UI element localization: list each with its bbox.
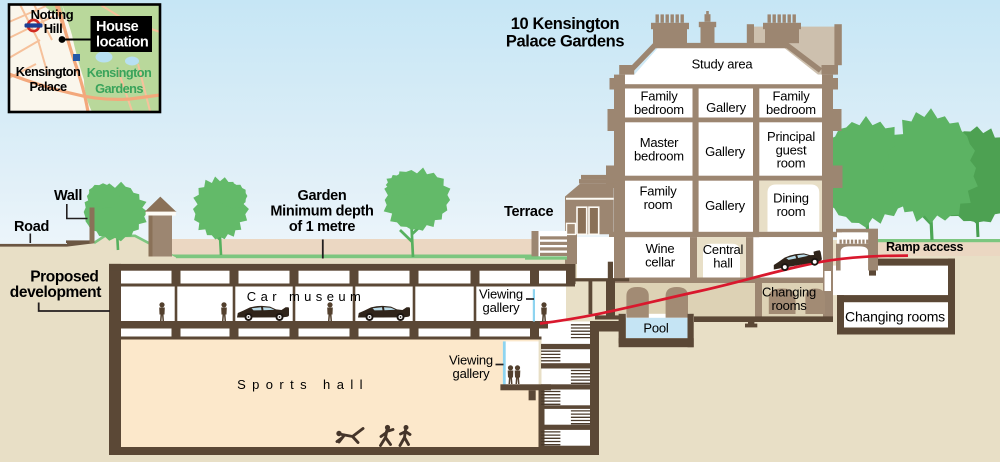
svg-text:Ramp access: Ramp access [886, 240, 964, 254]
svg-text:Terrace: Terrace [504, 204, 553, 220]
svg-text:gallery: gallery [453, 366, 491, 381]
svg-text:10 Kensington: 10 Kensington [511, 15, 620, 33]
svg-text:Proposed: Proposed [30, 269, 98, 286]
svg-text:Gallery: Gallery [705, 144, 745, 159]
svg-text:hall: hall [713, 255, 733, 270]
svg-text:Palace Gardens: Palace Gardens [506, 33, 624, 51]
svg-text:of 1 metre: of 1 metre [289, 219, 356, 235]
svg-text:Palace: Palace [30, 79, 67, 94]
svg-text:room: room [777, 156, 806, 171]
svg-text:bedroom: bedroom [634, 102, 684, 117]
svg-text:location: location [96, 35, 148, 51]
svg-text:Changing rooms: Changing rooms [845, 309, 945, 325]
svg-text:Gardens: Gardens [95, 81, 143, 96]
svg-text:Wall: Wall [54, 188, 82, 204]
svg-text:Kensington: Kensington [87, 65, 152, 80]
svg-text:Minimum depth: Minimum depth [270, 204, 373, 220]
svg-text:gallery: gallery [483, 300, 521, 315]
svg-text:cellar: cellar [645, 254, 676, 269]
svg-text:Pool: Pool [643, 321, 669, 336]
svg-text:rooms: rooms [771, 298, 807, 313]
svg-text:bedroom: bedroom [634, 149, 684, 164]
svg-text:bedroom: bedroom [766, 102, 816, 117]
svg-text:Car museum: Car museum [247, 289, 365, 304]
svg-text:Study area: Study area [692, 57, 754, 72]
svg-text:Sports hall: Sports hall [237, 377, 369, 392]
svg-text:development: development [10, 284, 101, 301]
svg-text:Gallery: Gallery [706, 100, 746, 115]
svg-text:room: room [644, 197, 673, 212]
svg-text:room: room [777, 204, 806, 219]
svg-text:Road: Road [14, 219, 49, 235]
svg-text:Garden: Garden [298, 188, 347, 204]
svg-text:Gallery: Gallery [705, 198, 745, 213]
svg-text:Hill: Hill [44, 21, 63, 36]
svg-text:Kensington: Kensington [16, 64, 81, 79]
svg-text:House: House [96, 19, 139, 35]
